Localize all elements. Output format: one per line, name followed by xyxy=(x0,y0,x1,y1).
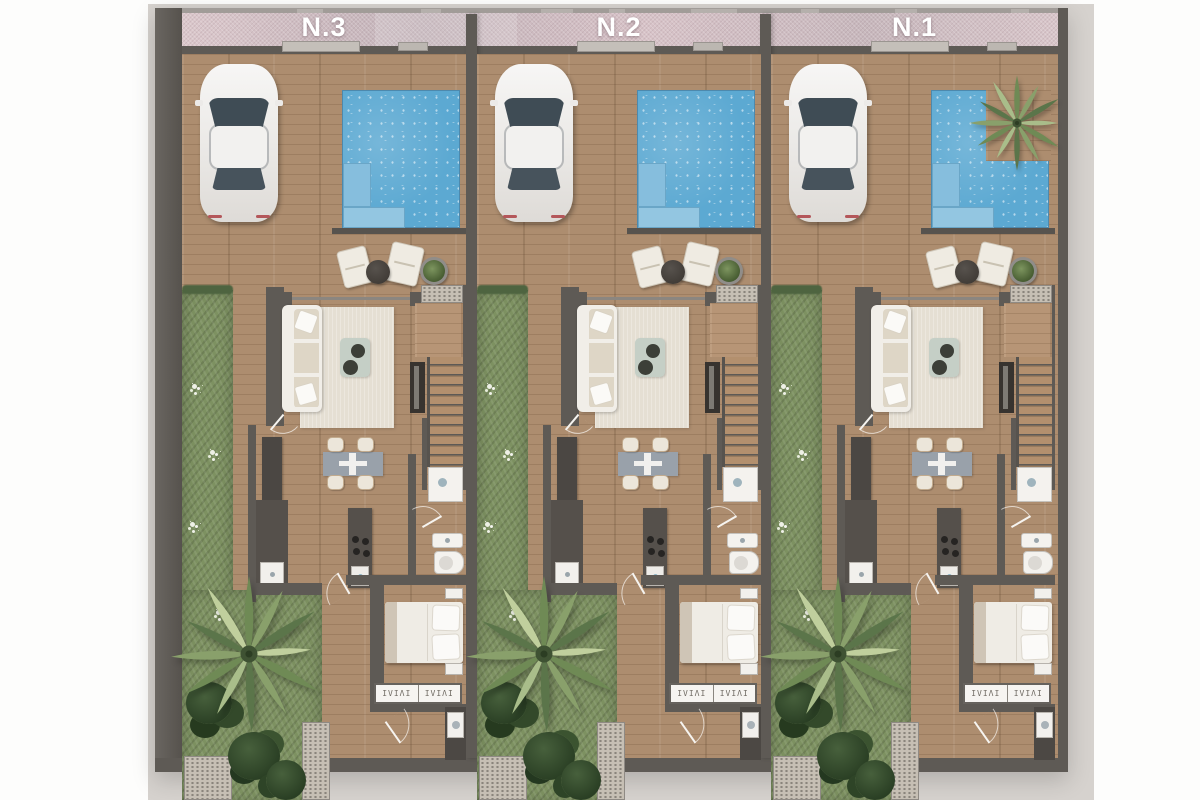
sliding-glass-door xyxy=(292,297,410,300)
hanger-marks-icon: ΙVΙΛΙ xyxy=(1008,685,1050,702)
wardrobe: ΙVΙΛΙ ΙVΙΛΙ xyxy=(669,683,757,704)
dining-chair xyxy=(916,475,933,490)
car-rear-window xyxy=(801,168,855,190)
washbasin xyxy=(1021,533,1052,548)
dining-table xyxy=(912,452,972,476)
pool xyxy=(637,90,755,228)
dining-chair xyxy=(327,437,344,452)
shower xyxy=(428,467,463,502)
pool-steps xyxy=(932,207,994,228)
pebble-planter xyxy=(421,285,463,303)
dining-chair xyxy=(622,475,639,490)
tv-unit xyxy=(999,362,1014,413)
shrub xyxy=(266,760,306,800)
shrub xyxy=(855,760,895,800)
pool-edge-wall xyxy=(627,228,761,234)
sliding-glass-door xyxy=(881,297,999,300)
duvet-fold xyxy=(1016,604,1017,661)
table-decor xyxy=(343,360,358,375)
washing-machine xyxy=(1036,712,1053,738)
bedroom-wall xyxy=(935,575,1055,585)
washbasin xyxy=(727,533,758,548)
pool xyxy=(342,90,460,228)
stair-wall xyxy=(422,418,427,490)
hanger-marks-icon: ΙVΙΛΙ xyxy=(965,685,1008,702)
car-taillight xyxy=(845,215,859,218)
utility-closet xyxy=(1034,707,1055,760)
bed-pillow xyxy=(1021,605,1050,632)
pool-steps xyxy=(343,207,405,228)
coffee-table xyxy=(929,338,959,377)
stair-wall xyxy=(1011,418,1016,490)
pebble-planter xyxy=(716,285,758,303)
potted-plant xyxy=(715,257,743,285)
bed-pillow xyxy=(727,605,756,632)
car-mirror xyxy=(864,100,872,106)
dining-chair xyxy=(327,475,344,490)
flower-cluster xyxy=(505,450,510,455)
bed-headboard xyxy=(680,602,692,663)
stair-wall xyxy=(1052,285,1055,490)
gravel-patch xyxy=(479,756,527,800)
unit-n2: ΙVΙΛΙ ΙVΙΛΙ xyxy=(477,54,761,758)
flower-cluster xyxy=(781,384,786,389)
hanger-marks-icon: ΙVΙΛΙ xyxy=(671,685,714,702)
bed-pillow xyxy=(432,605,461,632)
double-bed xyxy=(385,602,463,663)
car-taillight xyxy=(797,215,811,218)
hanger-marks-icon: ΙVΙΛΙ xyxy=(714,685,756,702)
potted-plant xyxy=(420,257,448,285)
shrub xyxy=(561,760,601,800)
car-mirror xyxy=(275,100,283,106)
car-rear-window xyxy=(507,168,561,190)
pool-steps xyxy=(638,207,700,228)
pool-edge-wall xyxy=(921,228,1055,234)
bedroom-wall xyxy=(641,575,761,585)
stair-wall xyxy=(758,285,761,490)
hedge xyxy=(182,285,233,294)
pool-steps xyxy=(932,163,960,207)
car-mirror xyxy=(490,100,498,106)
stair-landing xyxy=(1004,303,1052,357)
dining-table xyxy=(618,452,678,476)
coffee-table xyxy=(340,338,370,377)
flower-cluster xyxy=(190,522,195,527)
duvet-fold xyxy=(427,604,428,661)
pool-edge-wall xyxy=(332,228,466,234)
flower-cluster xyxy=(799,450,804,455)
fridge xyxy=(851,437,871,500)
staircase xyxy=(427,357,463,467)
cooktop-burners xyxy=(352,536,359,543)
floor-plan-render: ΙVΙΛΙ ΙVΙΛΙ xyxy=(0,0,1200,800)
double-bed xyxy=(680,602,758,663)
bed-pillow xyxy=(726,633,755,660)
hanger-marks-icon: ΙVΙΛΙ xyxy=(376,685,419,702)
unit-label: N.1 xyxy=(771,13,1058,43)
staircase xyxy=(1016,357,1052,467)
bed-headboard xyxy=(974,602,986,663)
bathroom-wall xyxy=(703,454,711,584)
pebble-planter xyxy=(1010,285,1052,303)
car-mirror xyxy=(570,100,578,106)
bedroom-wall xyxy=(346,575,466,585)
dining-chair xyxy=(946,437,963,452)
staircase xyxy=(722,357,758,467)
car-roof xyxy=(800,126,856,168)
double-bed xyxy=(974,602,1052,663)
entrance-step xyxy=(693,42,723,51)
stair-wall xyxy=(717,418,722,490)
flower-cluster xyxy=(192,384,197,389)
coffee-table xyxy=(635,338,665,377)
unit-n1: ΙVΙΛΙ ΙVΙΛΙ xyxy=(771,54,1058,758)
duvet-fold xyxy=(722,604,723,661)
unit-n3: ΙVΙΛΙ ΙVΙΛΙ xyxy=(182,54,466,758)
dining-chair xyxy=(622,437,639,452)
hedge xyxy=(477,285,528,294)
table-decor xyxy=(646,344,660,358)
flower-cluster xyxy=(210,450,215,455)
bed-pillow xyxy=(431,633,460,660)
fridge xyxy=(557,437,577,500)
dining-chair xyxy=(946,475,963,490)
bed-headboard xyxy=(385,602,397,663)
floor-plan: ΙVΙΛΙ ΙVΙΛΙ xyxy=(155,8,1068,772)
car-taillight xyxy=(551,215,565,218)
palm-tree-icon xyxy=(962,68,1072,178)
car-mirror xyxy=(784,100,792,106)
potted-plant xyxy=(1009,257,1037,285)
bathroom-wall xyxy=(408,454,416,584)
pool-palm-planter xyxy=(986,90,1051,161)
car-taillight xyxy=(503,215,517,218)
car-rear-window xyxy=(212,168,266,190)
parked-car xyxy=(200,64,278,222)
cooktop-burners xyxy=(647,536,654,543)
table-runner xyxy=(644,453,651,475)
terrace-side-table xyxy=(366,260,390,284)
wardrobe: ΙVΙΛΙ ΙVΙΛΙ xyxy=(374,683,462,704)
terrace-side-table xyxy=(661,260,685,284)
stair-landing xyxy=(415,303,463,357)
table-runner xyxy=(349,453,356,475)
gravel-patch xyxy=(184,756,232,800)
palm-tree-icon xyxy=(459,569,629,739)
parked-car xyxy=(495,64,573,222)
toilet xyxy=(1023,551,1053,574)
table-decor xyxy=(932,360,947,375)
dining-chair xyxy=(652,475,669,490)
flower-cluster xyxy=(485,522,490,527)
flower-cluster xyxy=(779,522,784,527)
dining-chair xyxy=(652,437,669,452)
entrance-step xyxy=(398,42,428,51)
car-windshield xyxy=(208,98,270,128)
wardrobe: ΙVΙΛΙ ΙVΙΛΙ xyxy=(963,683,1051,704)
dining-table xyxy=(323,452,383,476)
bathroom-wall xyxy=(997,454,1005,584)
gravel-patch xyxy=(773,756,821,800)
car-windshield xyxy=(797,98,859,128)
car-windshield xyxy=(503,98,565,128)
palm-tree-icon xyxy=(753,569,923,739)
car-taillight xyxy=(208,215,222,218)
dining-chair xyxy=(357,437,374,452)
parked-car xyxy=(789,64,867,222)
tv-unit xyxy=(410,362,425,413)
pool-steps xyxy=(343,163,371,207)
table-runner xyxy=(938,453,945,475)
bed-pillow xyxy=(1020,633,1049,660)
car-roof xyxy=(506,126,562,168)
hedge xyxy=(771,285,822,294)
entrance-step xyxy=(987,42,1017,51)
dining-chair xyxy=(357,475,374,490)
fridge xyxy=(262,437,282,500)
shower xyxy=(1017,467,1052,502)
car-roof xyxy=(211,126,267,168)
terrace-side-table xyxy=(955,260,979,284)
flower-cluster xyxy=(487,384,492,389)
stair-landing xyxy=(710,303,758,357)
table-decor xyxy=(638,360,653,375)
hanger-marks-icon: ΙVΙΛΙ xyxy=(419,685,461,702)
car-taillight xyxy=(256,215,270,218)
washbasin xyxy=(432,533,463,548)
unit-label: N.3 xyxy=(182,13,466,43)
shower xyxy=(723,467,758,502)
car-mirror xyxy=(195,100,203,106)
dining-chair xyxy=(916,437,933,452)
pool xyxy=(931,90,1049,228)
pool-steps xyxy=(638,163,666,207)
cooktop-burners xyxy=(941,536,948,543)
table-decor xyxy=(351,344,365,358)
table-decor xyxy=(940,344,954,358)
sliding-glass-door xyxy=(587,297,705,300)
nightstand xyxy=(1034,588,1052,599)
tv-unit xyxy=(705,362,720,413)
palm-tree-icon xyxy=(164,569,334,739)
nightstand xyxy=(1034,663,1052,675)
unit-label: N.2 xyxy=(477,13,761,43)
stair-wall xyxy=(463,285,466,490)
